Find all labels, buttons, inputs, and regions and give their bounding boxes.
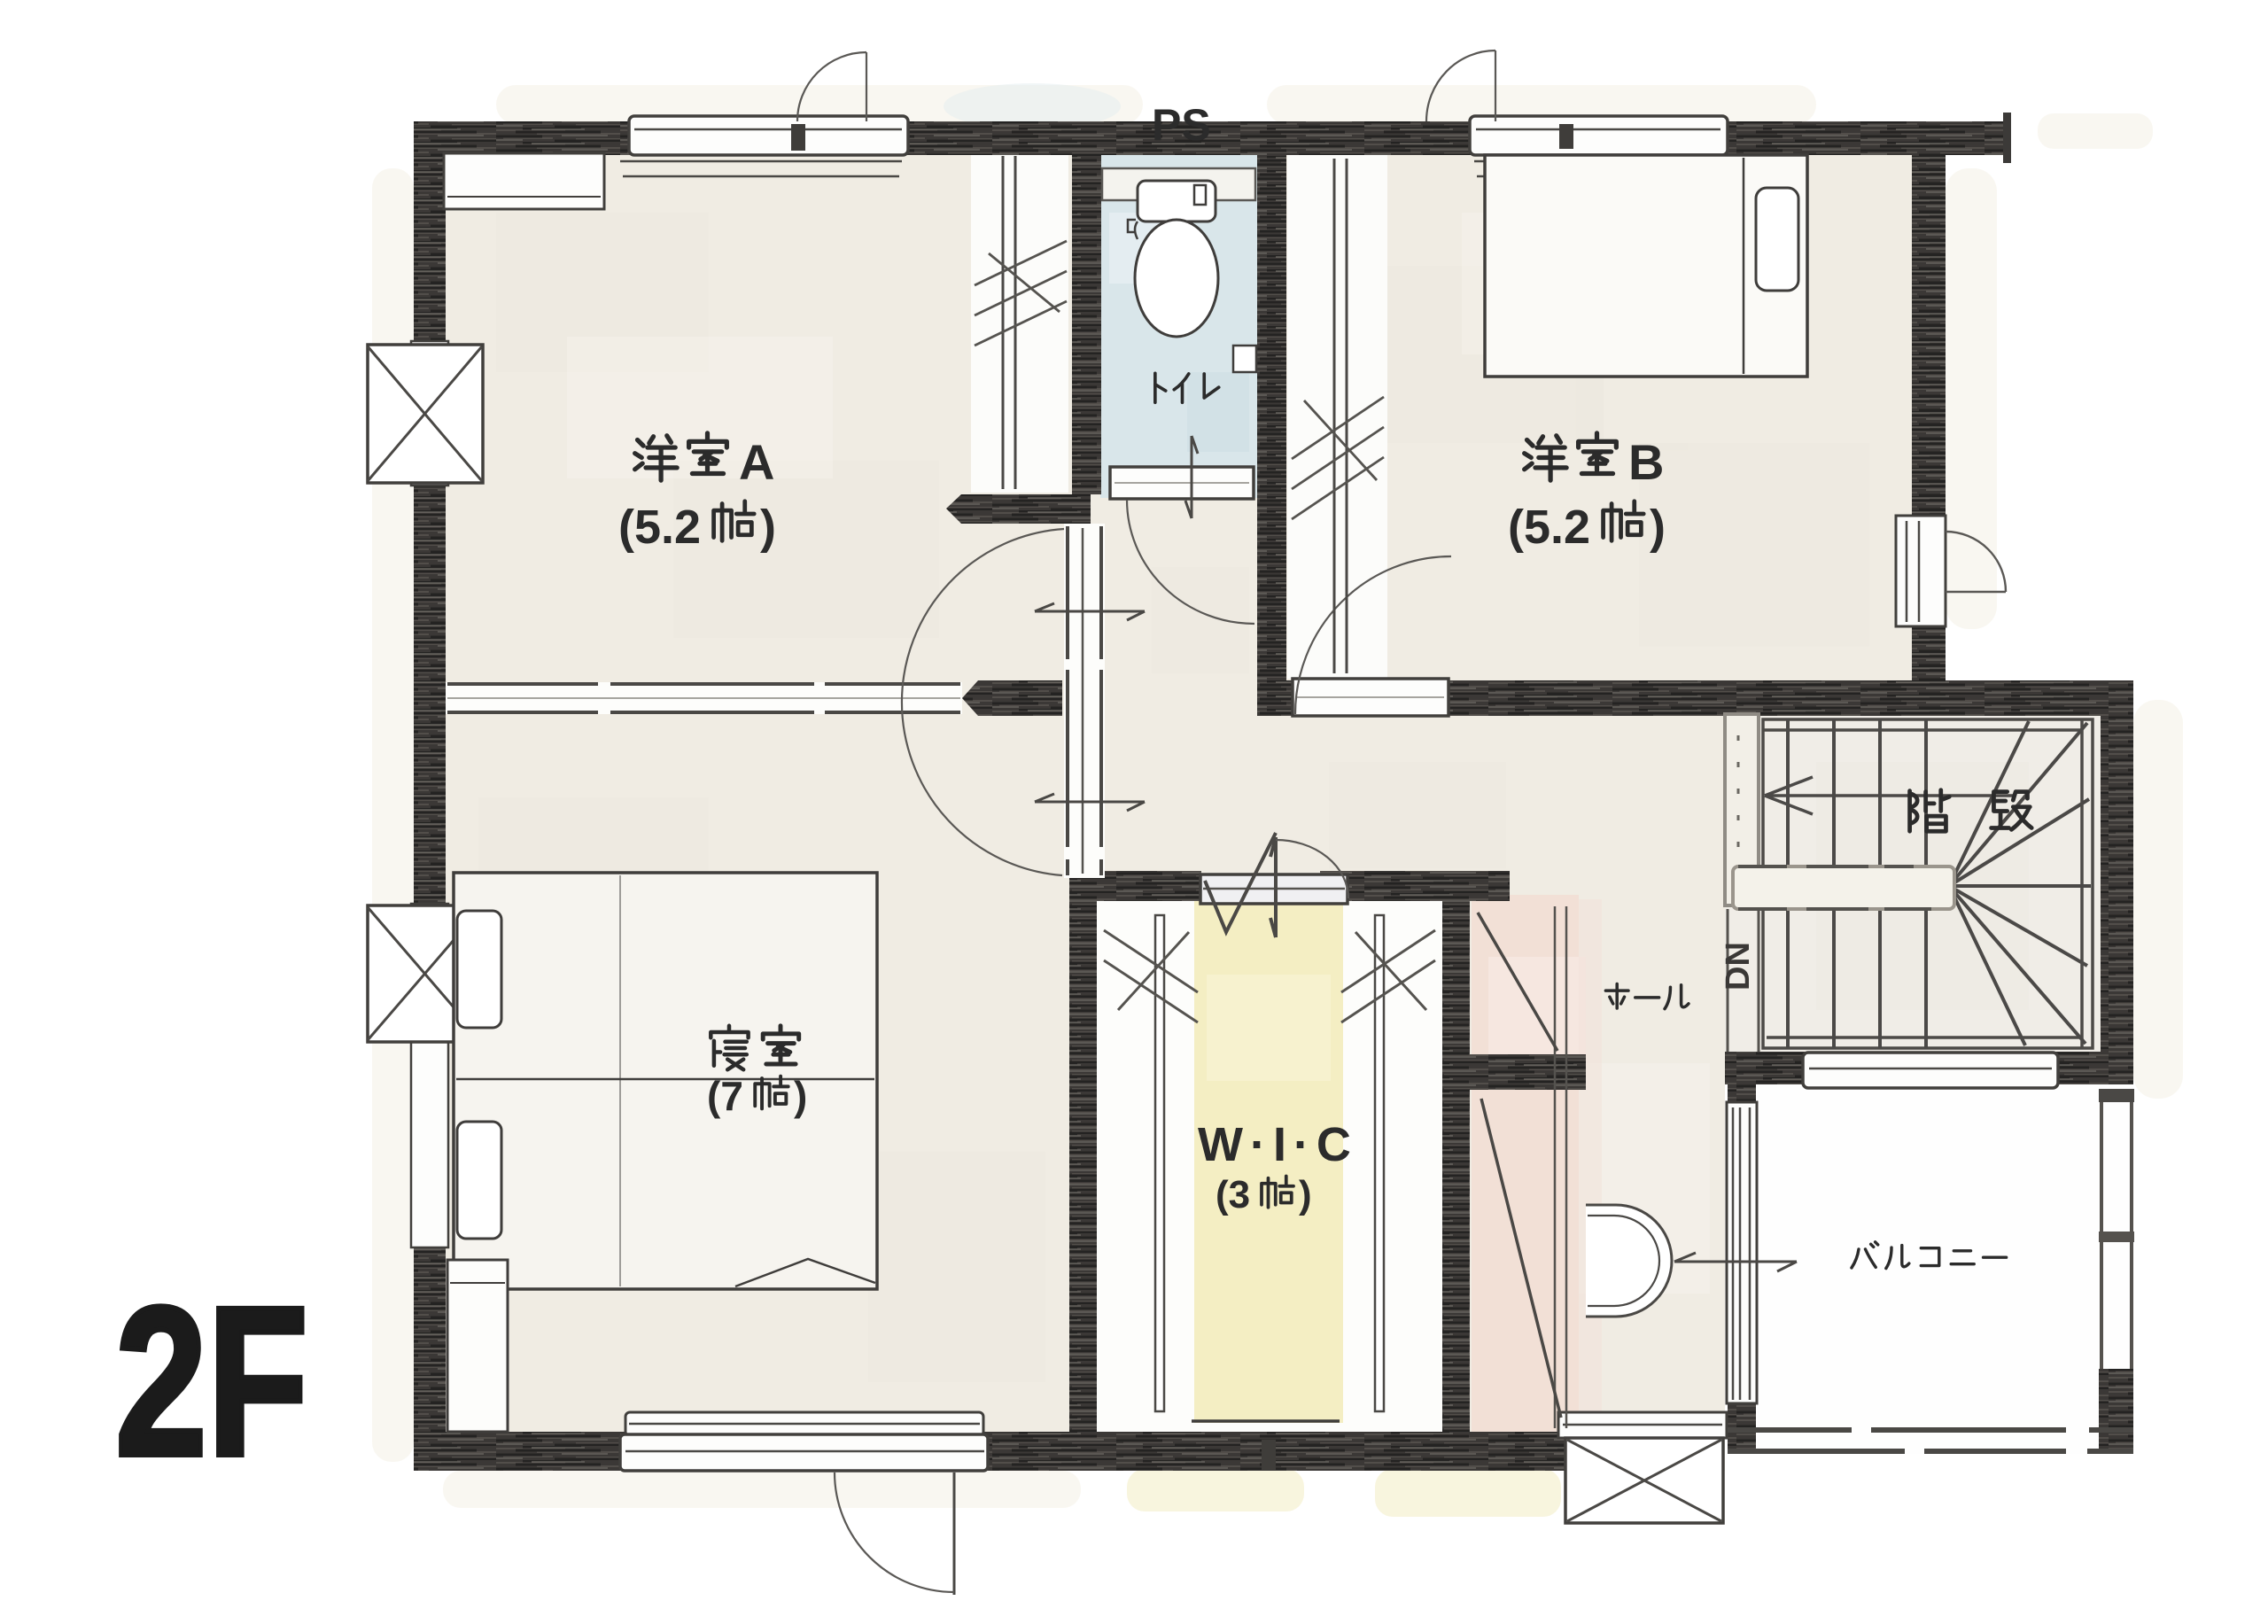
svg-text:PS: PS [1152,100,1211,150]
svg-text:B: B [1628,434,1664,490]
svg-text:W·I·C: W·I·C [1198,1118,1358,1171]
svg-text:): ) [794,1073,807,1119]
svg-text:(7: (7 [707,1073,743,1119]
svg-text:A: A [739,434,774,490]
svg-text:): ) [760,501,776,554]
svg-text:): ) [1299,1173,1312,1216]
svg-text:): ) [1650,501,1666,554]
svg-text:DN: DN [1720,942,1757,991]
svg-text:2F: 2F [115,1263,308,1500]
svg-text:(5.2: (5.2 [1508,501,1590,554]
svg-text:(5.2: (5.2 [618,501,701,554]
svg-text:(3: (3 [1216,1173,1250,1216]
